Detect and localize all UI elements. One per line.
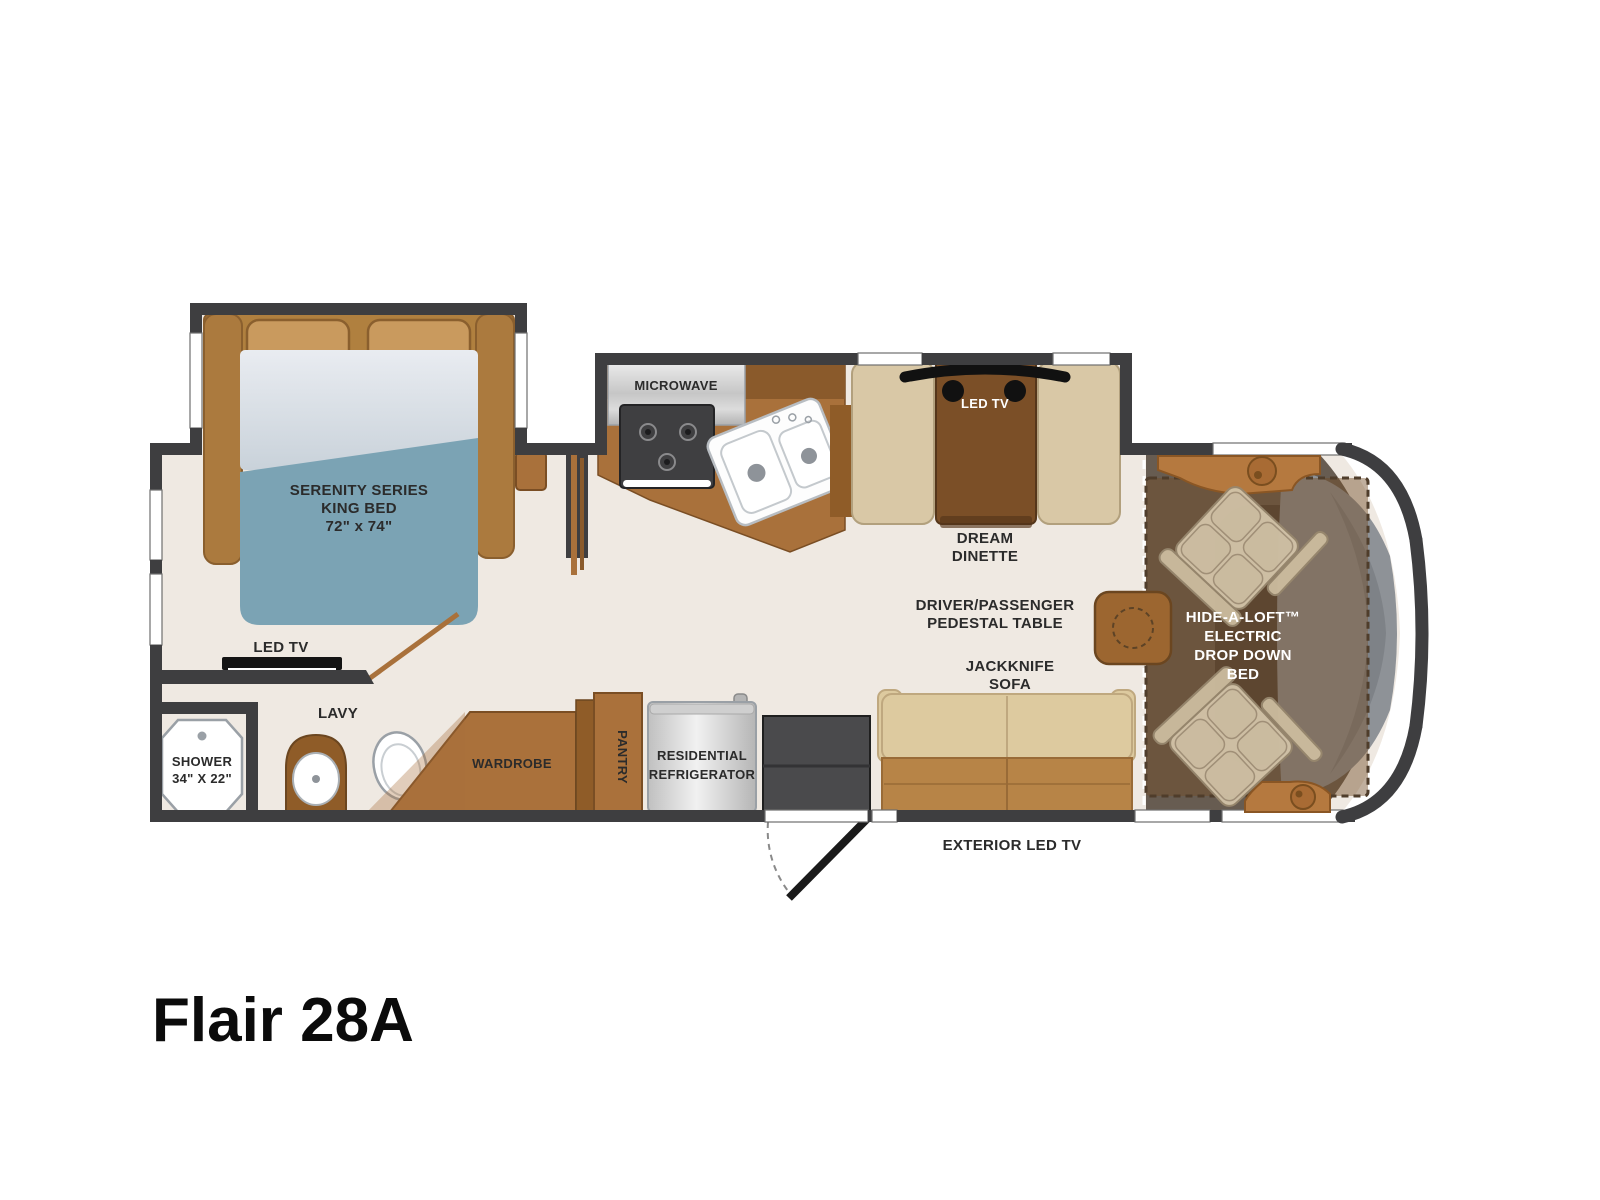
dinette-cabinet <box>830 405 852 517</box>
shower-label-line2: 34" X 22" <box>172 771 232 786</box>
pedestal-table <box>1095 592 1171 664</box>
pedestal-label-line1: DRIVER/PASSENGER <box>916 597 1075 614</box>
lavy-label: LAVY <box>318 705 358 722</box>
dropbed-label-line4: BED <box>1227 666 1260 683</box>
shower-drain <box>198 732 207 741</box>
pantry-side <box>576 700 594 812</box>
pedestal-label-line2: PEDESTAL TABLE <box>927 615 1063 632</box>
floorplan-page: SERENITY SERIES KING BED 72" x 74" LED T… <box>0 0 1600 1200</box>
entry-door-opening <box>765 810 868 822</box>
pocket-door-track <box>580 458 584 570</box>
sofa-label-line1: JACKKNIFE <box>966 658 1055 675</box>
pocket-door <box>571 455 577 575</box>
steering-puck-bottom <box>1291 785 1315 809</box>
exterior-tv-label: EXTERIOR LED TV <box>943 837 1082 854</box>
dropbed-label-line2: ELECTRIC <box>1204 628 1281 645</box>
fridge-label-line1: RESIDENTIAL <box>657 748 747 763</box>
pantry-fridge: PANTRY RESIDENTIAL REFRIGERATOR <box>576 693 756 812</box>
cooktop <box>620 405 714 488</box>
nightstand <box>516 452 546 490</box>
bed-label-line2: KING BED <box>321 500 397 517</box>
bed-rail-right <box>476 314 514 558</box>
window <box>150 574 162 645</box>
dropbed-label-line1: HIDE-A-LOFT™ <box>1186 609 1300 626</box>
window <box>858 353 922 365</box>
window <box>150 490 162 560</box>
microwave-label: MICROWAVE <box>634 378 717 393</box>
steering-puck-top <box>1248 457 1276 485</box>
dash-console-bottom <box>1245 782 1330 813</box>
entry-door-leaf <box>789 818 868 898</box>
shower-label-line1: SHOWER <box>172 754 233 769</box>
dropbed-label-line3: DROP DOWN <box>1194 647 1291 664</box>
jackknife-sofa <box>878 690 1135 812</box>
fridge-label-line2: REFRIGERATOR <box>649 767 756 782</box>
page-title: Flair 28A <box>152 985 414 1056</box>
entry-door <box>763 716 870 898</box>
dinette-bench-left <box>852 362 934 524</box>
wardrobe-label: WARDROBE <box>472 756 552 771</box>
dinette-tv-label: LED TV <box>961 396 1009 411</box>
refrigerator-top-band <box>650 704 754 714</box>
window <box>872 810 897 822</box>
bed-rail-left <box>204 314 242 564</box>
dinette-label-line2: DINETTE <box>952 548 1018 565</box>
window <box>190 333 202 428</box>
entry-door-swing <box>768 822 792 896</box>
dinette-bench-right <box>1038 362 1120 524</box>
window <box>1053 353 1110 365</box>
passenger-door <box>1213 443 1345 455</box>
sofa-label-line2: SOFA <box>989 676 1031 693</box>
window <box>1135 810 1210 822</box>
dinette-table-shadow <box>940 516 1032 528</box>
dinette-label-line1: DREAM <box>957 530 1014 547</box>
bed-label-line1: SERENITY SERIES <box>290 482 428 499</box>
bedroom-tv-label: LED TV <box>253 639 308 656</box>
window <box>515 333 527 428</box>
pantry-label: PANTRY <box>615 730 630 784</box>
vanity-drain <box>312 775 320 783</box>
bed-label-line3: 72" x 74" <box>326 518 393 535</box>
